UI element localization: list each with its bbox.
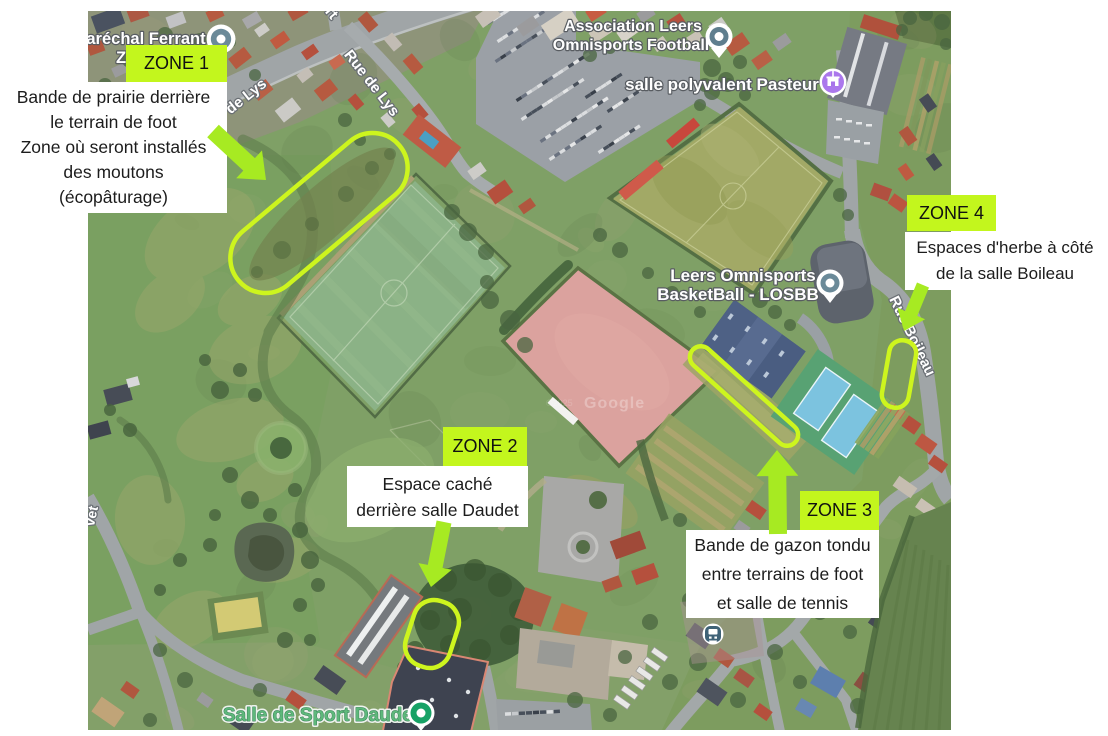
svg-text:BasketBall - LOSBB: BasketBall - LOSBB xyxy=(657,285,819,304)
svg-text:Association Leers: Association Leers xyxy=(564,18,702,35)
svg-text:Omnisports Football: Omnisports Football xyxy=(553,37,709,54)
svg-text:©2025: ©2025 xyxy=(546,398,573,408)
svg-text:Google: Google xyxy=(584,395,645,412)
svg-text:Leers Omnisports: Leers Omnisports xyxy=(670,266,816,285)
svg-text:Salle de Sport Daudet: Salle de Sport Daudet xyxy=(223,705,420,726)
svg-text:salle polyvalent Pasteur: salle polyvalent Pasteur xyxy=(625,75,819,94)
svg-text:Z: Z xyxy=(116,49,126,67)
